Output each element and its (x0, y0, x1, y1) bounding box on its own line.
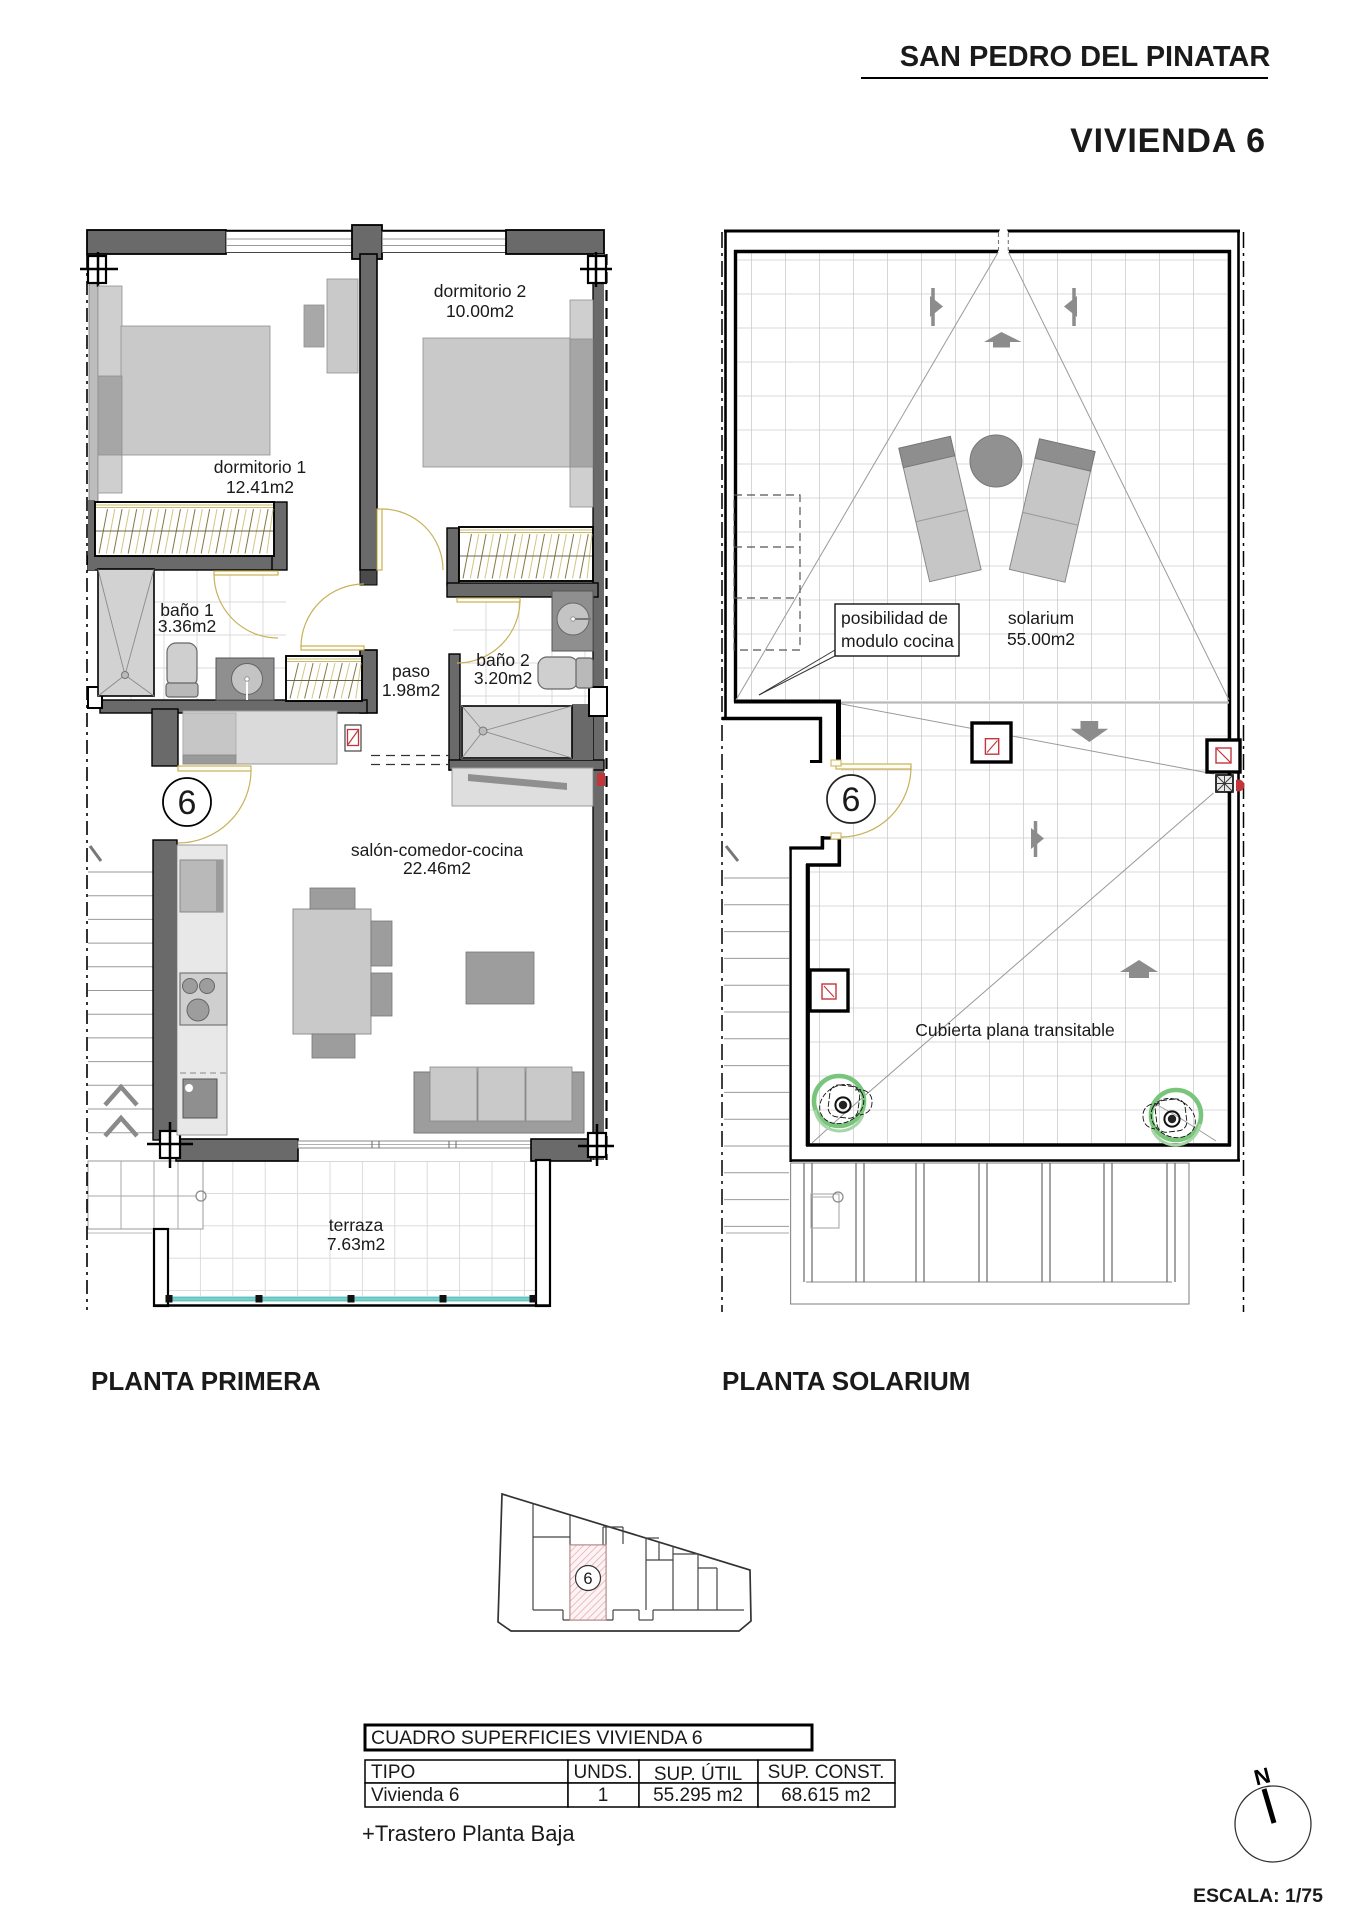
svg-text:ESCALA: 1/75: ESCALA: 1/75 (1193, 1885, 1323, 1907)
svg-text:55.00m2: 55.00m2 (1007, 629, 1075, 649)
svg-text:PLANTA SOLARIUM: PLANTA SOLARIUM (722, 1366, 970, 1396)
svg-text:22.46m2: 22.46m2 (403, 858, 471, 878)
svg-text:6: 6 (178, 784, 197, 822)
svg-text:68.615 m2: 68.615 m2 (781, 1785, 871, 1806)
svg-text:1.98m2: 1.98m2 (382, 680, 440, 700)
svg-text:1: 1 (598, 1785, 609, 1806)
svg-text:posibilidad de: posibilidad de (841, 608, 948, 628)
svg-text:10.00m2: 10.00m2 (446, 301, 514, 321)
svg-text:6: 6 (842, 781, 861, 819)
svg-text:6: 6 (583, 1570, 592, 1588)
svg-text:12.41m2: 12.41m2 (226, 477, 294, 497)
svg-text:3.36m2: 3.36m2 (158, 616, 216, 636)
svg-text:UNDS.: UNDS. (573, 1762, 632, 1783)
svg-text:salón-comedor-cocina: salón-comedor-cocina (351, 840, 523, 860)
svg-text:SUP. CONST.: SUP. CONST. (768, 1762, 885, 1783)
svg-text:baño 2: baño 2 (476, 650, 530, 670)
svg-text:VIVIENDA 6: VIVIENDA 6 (1070, 122, 1266, 160)
svg-text:55.295 m2: 55.295 m2 (653, 1785, 743, 1806)
svg-text:SUP. ÚTIL: SUP. ÚTIL (654, 1763, 742, 1785)
svg-text:+Trastero Planta Baja: +Trastero Planta Baja (362, 1821, 575, 1846)
svg-text:solarium: solarium (1008, 608, 1074, 628)
svg-text:Cubierta plana transitable: Cubierta plana transitable (915, 1020, 1114, 1040)
svg-text:paso: paso (392, 661, 430, 681)
svg-text:terraza: terraza (329, 1215, 384, 1235)
svg-text:SAN PEDRO DEL PINATAR: SAN PEDRO DEL PINATAR (900, 41, 1271, 73)
svg-text:modulo cocina: modulo cocina (841, 631, 954, 651)
svg-text:3.20m2: 3.20m2 (474, 668, 532, 688)
svg-text:dormitorio 1: dormitorio 1 (214, 457, 306, 477)
svg-text:TIPO: TIPO (371, 1762, 415, 1783)
svg-text:PLANTA PRIMERA: PLANTA PRIMERA (91, 1366, 321, 1396)
svg-text:7.63m2: 7.63m2 (327, 1234, 385, 1254)
svg-text:CUADRO SUPERFICIES VIVIENDA 6: CUADRO SUPERFICIES VIVIENDA 6 (371, 1727, 703, 1749)
svg-text:Vivienda 6: Vivienda 6 (371, 1785, 459, 1806)
svg-text:dormitorio 2: dormitorio 2 (434, 281, 526, 301)
